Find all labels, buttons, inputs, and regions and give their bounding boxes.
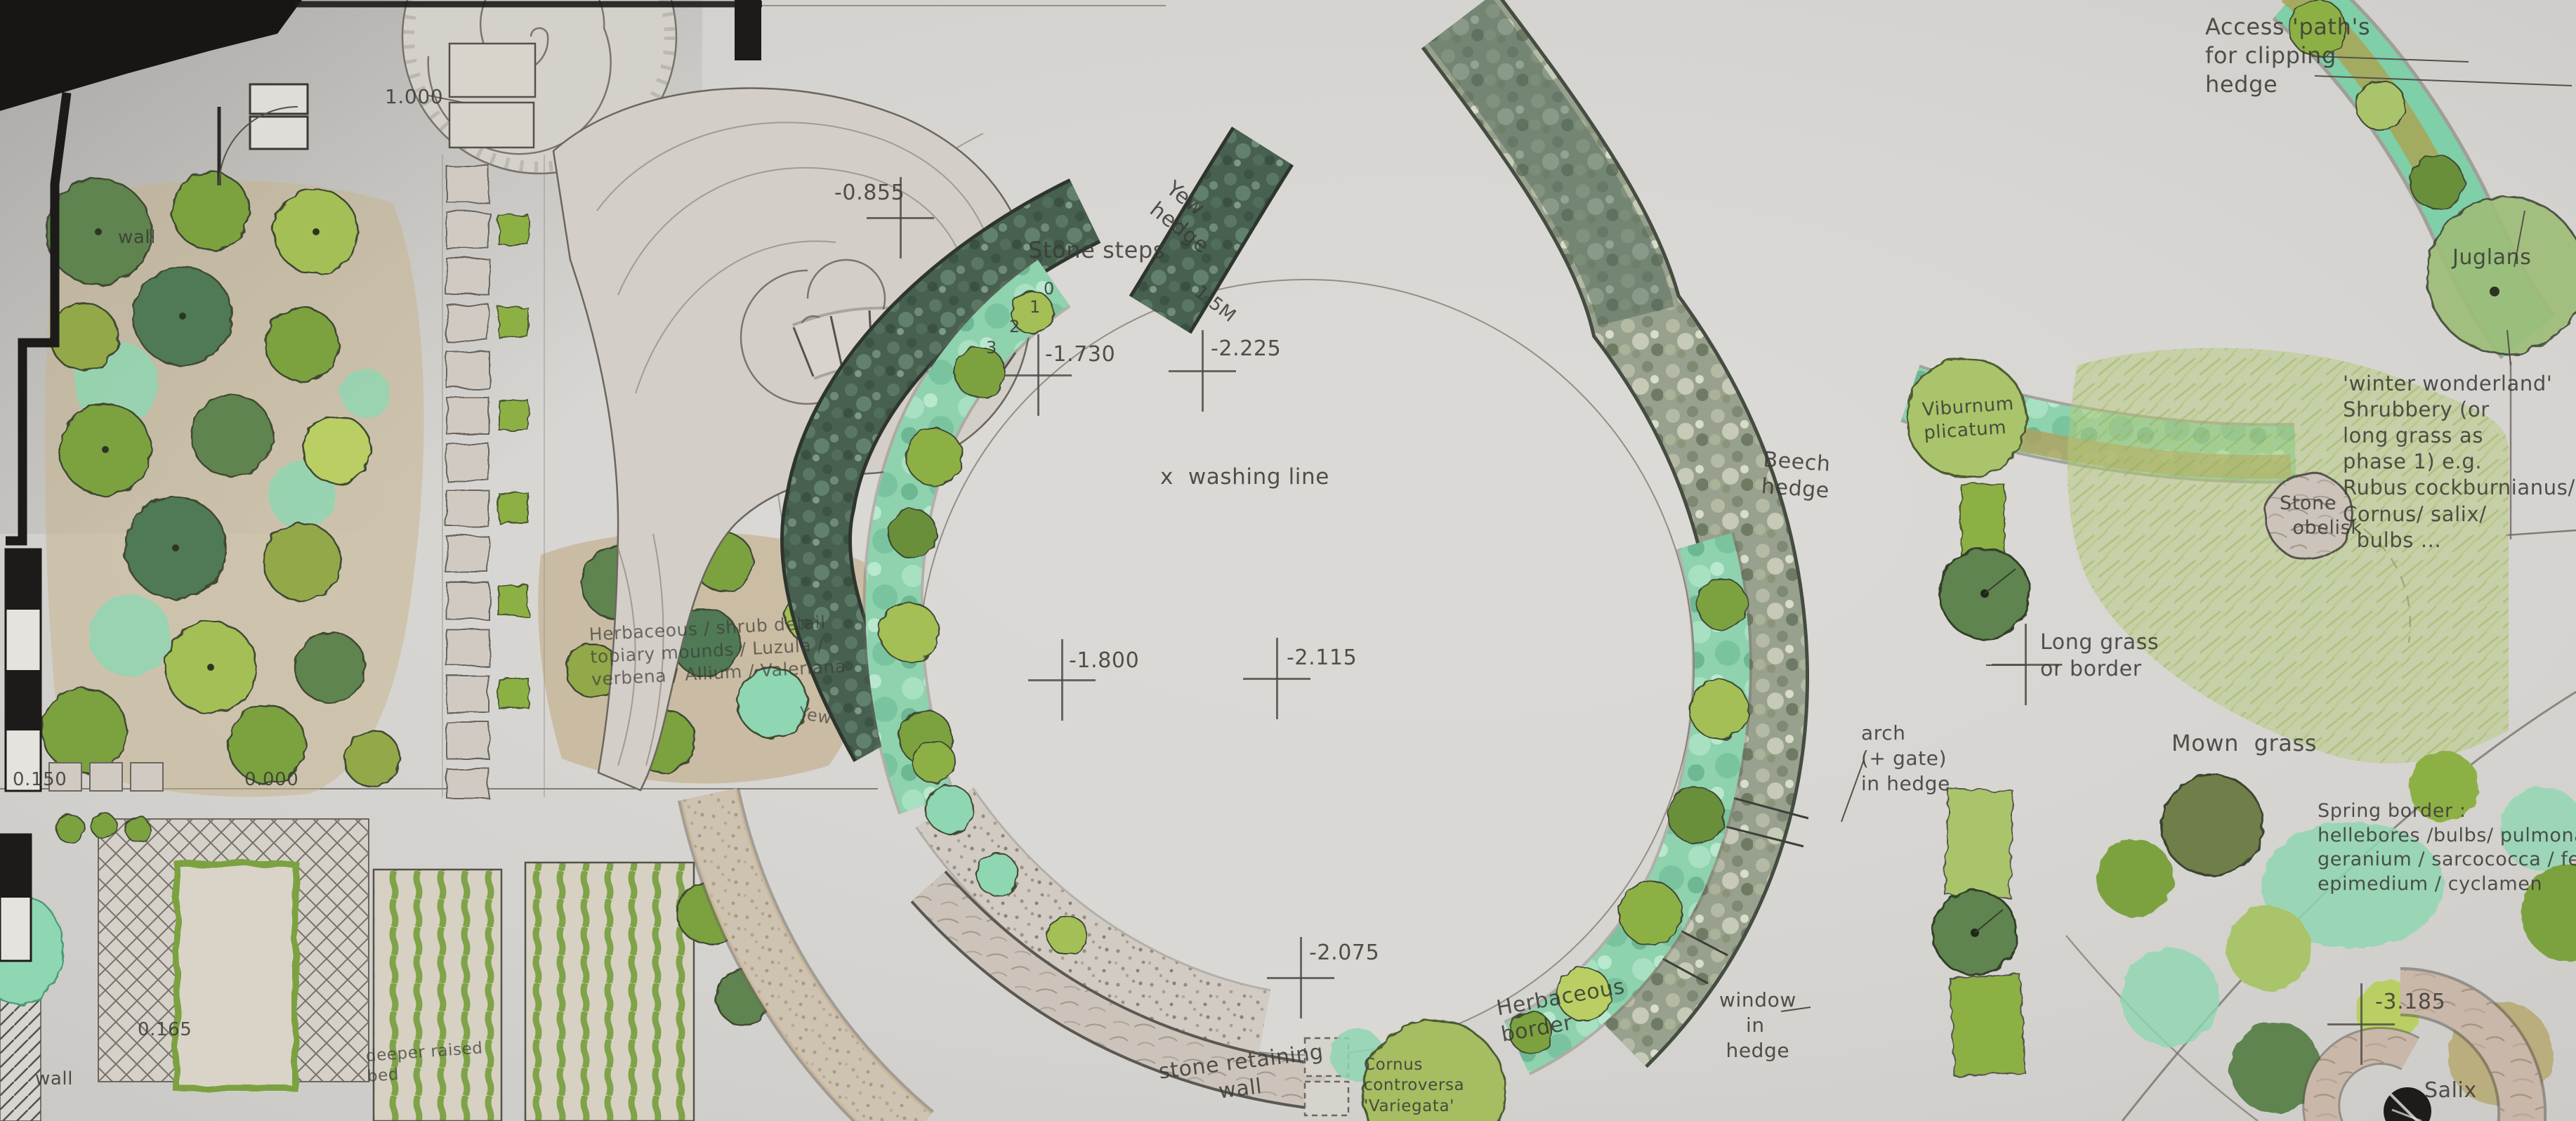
spring-shrub xyxy=(2162,775,2263,876)
tree-blob xyxy=(42,688,126,773)
long-border-strip-2 xyxy=(1950,974,2025,1076)
tree-blob xyxy=(191,395,272,476)
viburnum-shrub xyxy=(1907,358,2026,478)
long-border-strip-1 xyxy=(1945,789,2013,896)
green-edged-bed xyxy=(177,864,295,1089)
spring-shrub xyxy=(2409,752,2479,822)
border-shrub xyxy=(926,785,973,833)
tree-blob xyxy=(263,523,341,601)
planter-boxes xyxy=(449,44,535,147)
border-shrub xyxy=(1697,579,1747,629)
border-shrub xyxy=(954,347,1005,398)
tree-blob xyxy=(228,706,305,783)
border-shrub xyxy=(906,428,962,485)
veg-bed-2 xyxy=(525,863,694,1121)
juglans-trunk-dot xyxy=(2490,287,2499,296)
border-shrub xyxy=(2356,81,2405,130)
teal-patch xyxy=(2121,948,2219,1047)
hedge-tree-2 xyxy=(1933,891,2017,975)
tree-blob xyxy=(265,308,339,381)
border-shrub xyxy=(880,603,939,662)
border-shrub xyxy=(1619,881,1682,945)
border-shrub xyxy=(1557,967,1610,1021)
border-shrub xyxy=(976,853,1018,896)
border-shrub xyxy=(1011,291,1053,334)
tree-blob xyxy=(303,416,371,483)
border-shrub xyxy=(913,741,955,783)
stone-obelisk-feature xyxy=(2266,473,2353,560)
spring-shrub xyxy=(2226,906,2311,990)
tree-blob xyxy=(295,632,365,702)
juglans-canopy xyxy=(2427,197,2576,354)
border-shrub xyxy=(889,510,937,558)
tree-blob xyxy=(51,303,118,371)
garden-plan-drawing: Access 'path's for clipping hedge'winter… xyxy=(0,0,2576,1121)
topiary-balls xyxy=(56,813,150,843)
border-shrub xyxy=(2410,156,2464,209)
teal-patch xyxy=(737,667,808,737)
border-shrub xyxy=(1510,1011,1552,1054)
border-shrub xyxy=(1690,680,1749,739)
border-shrub xyxy=(1048,916,1087,955)
veg-bed-1 xyxy=(374,870,501,1121)
border-shrub xyxy=(2289,0,2346,56)
spring-shrub xyxy=(2096,839,2174,917)
wall-pier xyxy=(735,0,761,60)
paver-squares-row xyxy=(49,763,163,791)
tree-blob xyxy=(344,730,400,787)
tree-blob xyxy=(172,172,249,249)
plan-artwork xyxy=(0,0,2576,1121)
border-shrub xyxy=(1668,787,1724,843)
